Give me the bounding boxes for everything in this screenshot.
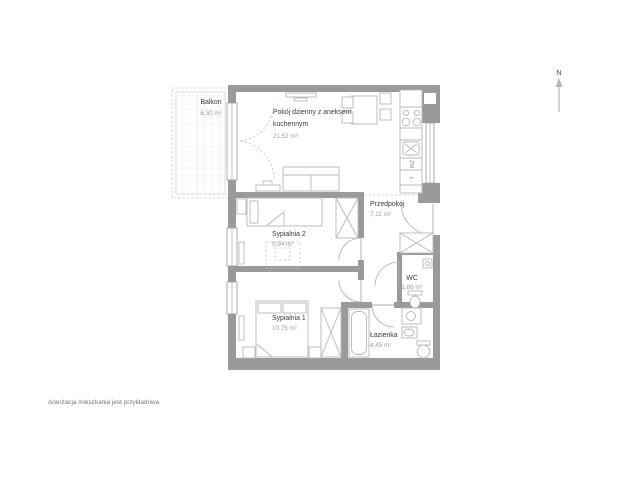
toilet-bowl: [410, 296, 420, 308]
balcony-door-swing-top: [236, 103, 274, 141]
north-arrow-icon: N: [556, 68, 563, 112]
hall-area: 7,11 m²: [370, 211, 391, 218]
dining-table-symbol: [351, 96, 377, 124]
tv-stand-symbol: [294, 98, 307, 101]
wall-left-4: [228, 314, 236, 358]
tv-symbol: [286, 93, 316, 97]
wc-door-swing: [375, 262, 399, 286]
wall-living-bedroom2: [236, 192, 364, 198]
balcony-area: 6,30 m²: [200, 110, 221, 117]
kitchen-annex: ZM L: [400, 90, 422, 193]
wall-bedroom1-bath: [341, 302, 348, 358]
bedroom1-door-swing: [339, 280, 361, 302]
floor-plan-drawing: ZM L: [0, 0, 640, 480]
bathroom-area: 4,45 m²: [370, 342, 391, 349]
chair-symbol: [380, 93, 391, 104]
toilet-bowl: [418, 345, 430, 358]
radiator-symbol: [239, 242, 244, 264]
floor-plan-page: ZM L: [0, 0, 640, 480]
hall-furniture: [400, 233, 433, 253]
balcony-tiles: [176, 92, 225, 194]
media-unit-top: [263, 181, 272, 185]
bathroom-name: Łazienka: [370, 332, 398, 339]
toilet-tank: [408, 291, 422, 295]
bedroom2-name: Sypialnia 2: [272, 231, 306, 238]
chair-symbol: [380, 109, 391, 120]
north-label: N: [556, 68, 561, 77]
washing-machine-symbol: [402, 308, 421, 324]
nightstand-symbol: [243, 347, 255, 358]
wall-left-1: [228, 85, 236, 103]
toilet-tank: [417, 341, 430, 345]
living-room-furniture: [256, 93, 391, 191]
chair-symbol: [342, 97, 353, 108]
north-arrow-head: [556, 78, 563, 87]
fridge-label: L: [408, 176, 414, 179]
disclaimer-text: Aranżacja mieszkania jest przykładowa: [48, 399, 160, 406]
wall-left-3: [228, 266, 236, 282]
wall-right: [433, 235, 440, 370]
living-room-area: 21,52 m²: [273, 133, 298, 140]
bathroom-door-swing: [372, 305, 394, 327]
hall-name: Przedpokój: [370, 201, 405, 208]
wc-area: 1,86 m²: [401, 284, 422, 291]
wall-bedroom1-bedroom2: [236, 266, 358, 272]
small-sink-symbol: [423, 259, 432, 268]
media-unit-symbol: [256, 185, 280, 191]
balcony-door-swing-bottom: [236, 141, 274, 180]
dishwasher-label: ZM: [408, 160, 414, 168]
bedroom1-area: 10,75 m²: [272, 325, 297, 332]
nightstand-symbol: [309, 347, 321, 358]
wall-notch: [424, 93, 436, 104]
living-room-name-line2: kuchennym: [273, 121, 308, 128]
wall-bottom: [228, 358, 440, 370]
wc-name: WC: [406, 275, 418, 282]
balcony-name: Balkon: [200, 99, 221, 106]
desk-chair-symbol: [275, 248, 290, 260]
wall-left-2: [228, 180, 236, 228]
wall-hall-1: [358, 198, 364, 238]
nightstand-symbol: [237, 199, 246, 214]
bedroom2-area: 9,94 m²: [272, 241, 293, 248]
bedroom1-name: Sypialnia 1: [272, 315, 306, 322]
entrance-door-swing: [401, 203, 433, 235]
bedroom2-door-swing: [339, 238, 361, 260]
radiator-symbol: [239, 316, 244, 340]
wall-hall-2: [358, 260, 364, 280]
living-room-name-line1: Pokój dzienny z aneksem: [273, 109, 351, 116]
